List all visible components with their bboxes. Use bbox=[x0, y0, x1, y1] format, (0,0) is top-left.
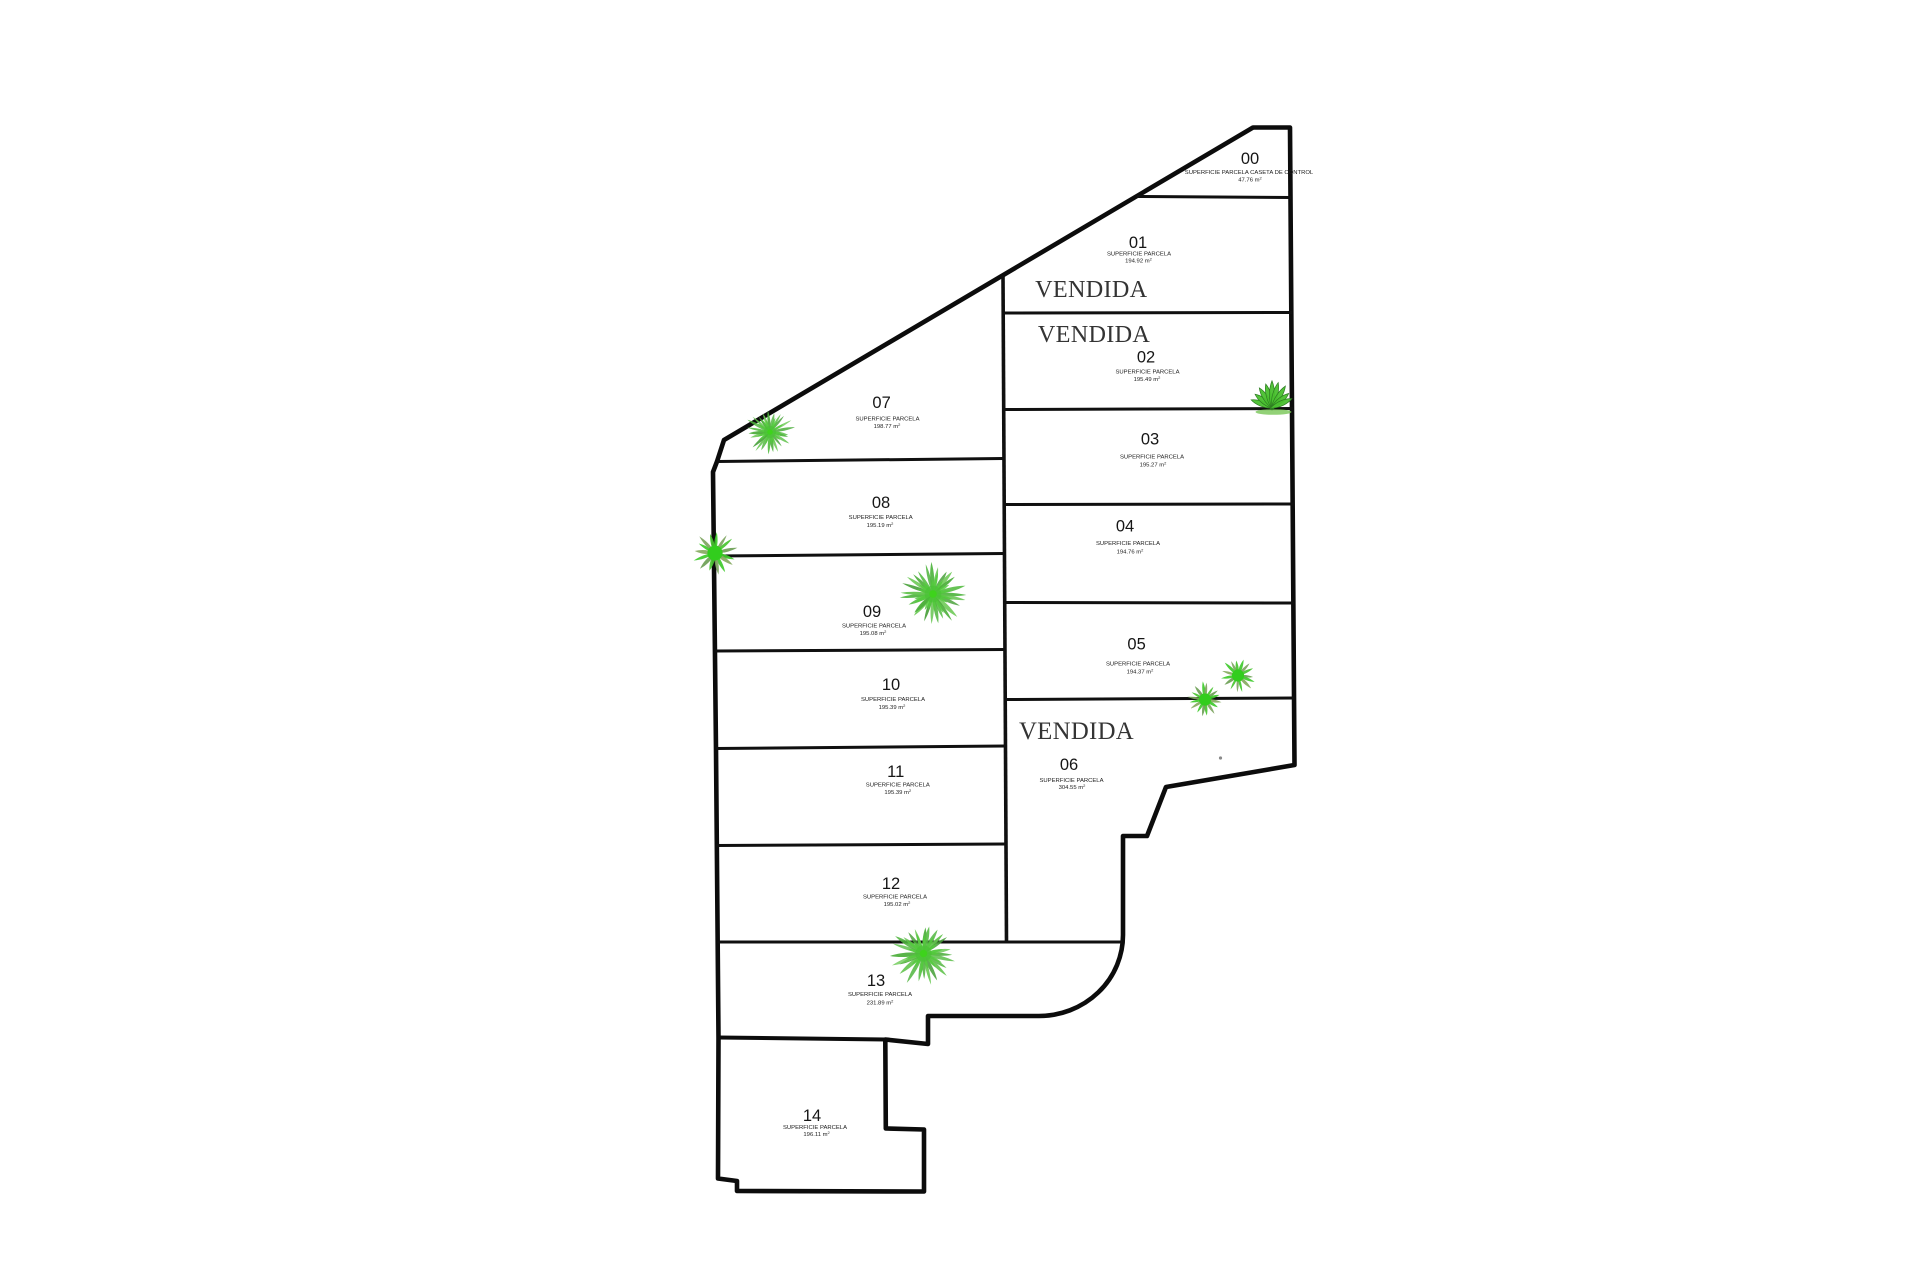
svg-text:SUPERFICIE PARCELA: SUPERFICIE PARCELA bbox=[849, 515, 913, 521]
svg-text:195.08 m2: 195.08 m2 bbox=[860, 629, 888, 637]
svg-text:VENDIDA: VENDIDA bbox=[1035, 276, 1147, 303]
svg-text:SUPERFICIE PARCELA: SUPERFICIE PARCELA bbox=[1039, 778, 1103, 784]
svg-text:304.55 m2: 304.55 m2 bbox=[1059, 783, 1087, 791]
svg-text:10: 10 bbox=[882, 676, 900, 694]
svg-text:SUPERFICIE PARCELA: SUPERFICIE PARCELA bbox=[1096, 541, 1160, 547]
svg-text:195.39 m2: 195.39 m2 bbox=[879, 703, 907, 711]
svg-text:02: 02 bbox=[1137, 349, 1155, 367]
svg-text:SUPERFICIE PARCELA: SUPERFICIE PARCELA bbox=[848, 992, 912, 998]
svg-text:12: 12 bbox=[882, 875, 900, 893]
svg-text:VENDIDA: VENDIDA bbox=[1019, 718, 1134, 745]
svg-text:SUPERFICIE PARCELA: SUPERFICIE PARCELA bbox=[866, 783, 930, 789]
svg-text:SUPERFICIE PARCELA CASETA DE C: SUPERFICIE PARCELA CASETA DE CONTROL bbox=[1185, 170, 1314, 176]
svg-text:VENDIDA: VENDIDA bbox=[1038, 321, 1150, 348]
svg-text:198.77 m2: 198.77 m2 bbox=[874, 422, 902, 430]
svg-text:04: 04 bbox=[1116, 518, 1134, 536]
svg-text:195.27 m2: 195.27 m2 bbox=[1140, 461, 1168, 469]
svg-text:00: 00 bbox=[1241, 150, 1259, 168]
svg-text:06: 06 bbox=[1060, 756, 1078, 774]
svg-text:47.76 m2: 47.76 m2 bbox=[1238, 176, 1262, 184]
svg-text:SUPERFICIE PARCELA: SUPERFICIE PARCELA bbox=[783, 1125, 847, 1131]
svg-text:08: 08 bbox=[872, 494, 890, 512]
svg-text:SUPERFICIE PARCELA: SUPERFICIE PARCELA bbox=[861, 697, 925, 703]
svg-text:05: 05 bbox=[1127, 636, 1145, 654]
svg-text:SUPERFICIE PARCELA: SUPERFICIE PARCELA bbox=[1107, 252, 1171, 258]
svg-text:194.37 m2: 194.37 m2 bbox=[1127, 668, 1155, 676]
svg-text:03: 03 bbox=[1141, 430, 1159, 448]
svg-text:SUPERFICIE PARCELA: SUPERFICIE PARCELA bbox=[1106, 661, 1170, 667]
svg-text:195.02 m2: 195.02 m2 bbox=[884, 900, 912, 908]
svg-text:194.92 m2: 194.92 m2 bbox=[1125, 257, 1153, 265]
svg-text:SUPERFICIE PARCELA: SUPERFICIE PARCELA bbox=[855, 416, 919, 422]
svg-text:SUPERFICIE PARCELA: SUPERFICIE PARCELA bbox=[842, 624, 906, 630]
svg-text:13: 13 bbox=[867, 972, 885, 990]
svg-text:07: 07 bbox=[872, 394, 890, 412]
svg-text:195.49 m2: 195.49 m2 bbox=[1134, 375, 1162, 383]
svg-text:SUPERFICIE PARCELA: SUPERFICIE PARCELA bbox=[863, 895, 927, 901]
svg-text:231.89 m2: 231.89 m2 bbox=[867, 999, 895, 1007]
svg-text:SUPERFICIE PARCELA: SUPERFICIE PARCELA bbox=[1120, 454, 1184, 460]
svg-text:09: 09 bbox=[863, 603, 881, 621]
svg-text:195.19 m2: 195.19 m2 bbox=[867, 521, 895, 529]
svg-text:SUPERFICIE PARCELA: SUPERFICIE PARCELA bbox=[1115, 370, 1179, 376]
svg-text:01: 01 bbox=[1129, 234, 1147, 252]
svg-text:11: 11 bbox=[887, 763, 904, 781]
svg-text:194.76 m2: 194.76 m2 bbox=[1117, 547, 1145, 555]
svg-text:195.39 m2: 195.39 m2 bbox=[884, 788, 912, 796]
svg-text:14: 14 bbox=[803, 1107, 821, 1125]
svg-text:196.11 m2: 196.11 m2 bbox=[803, 1130, 830, 1138]
